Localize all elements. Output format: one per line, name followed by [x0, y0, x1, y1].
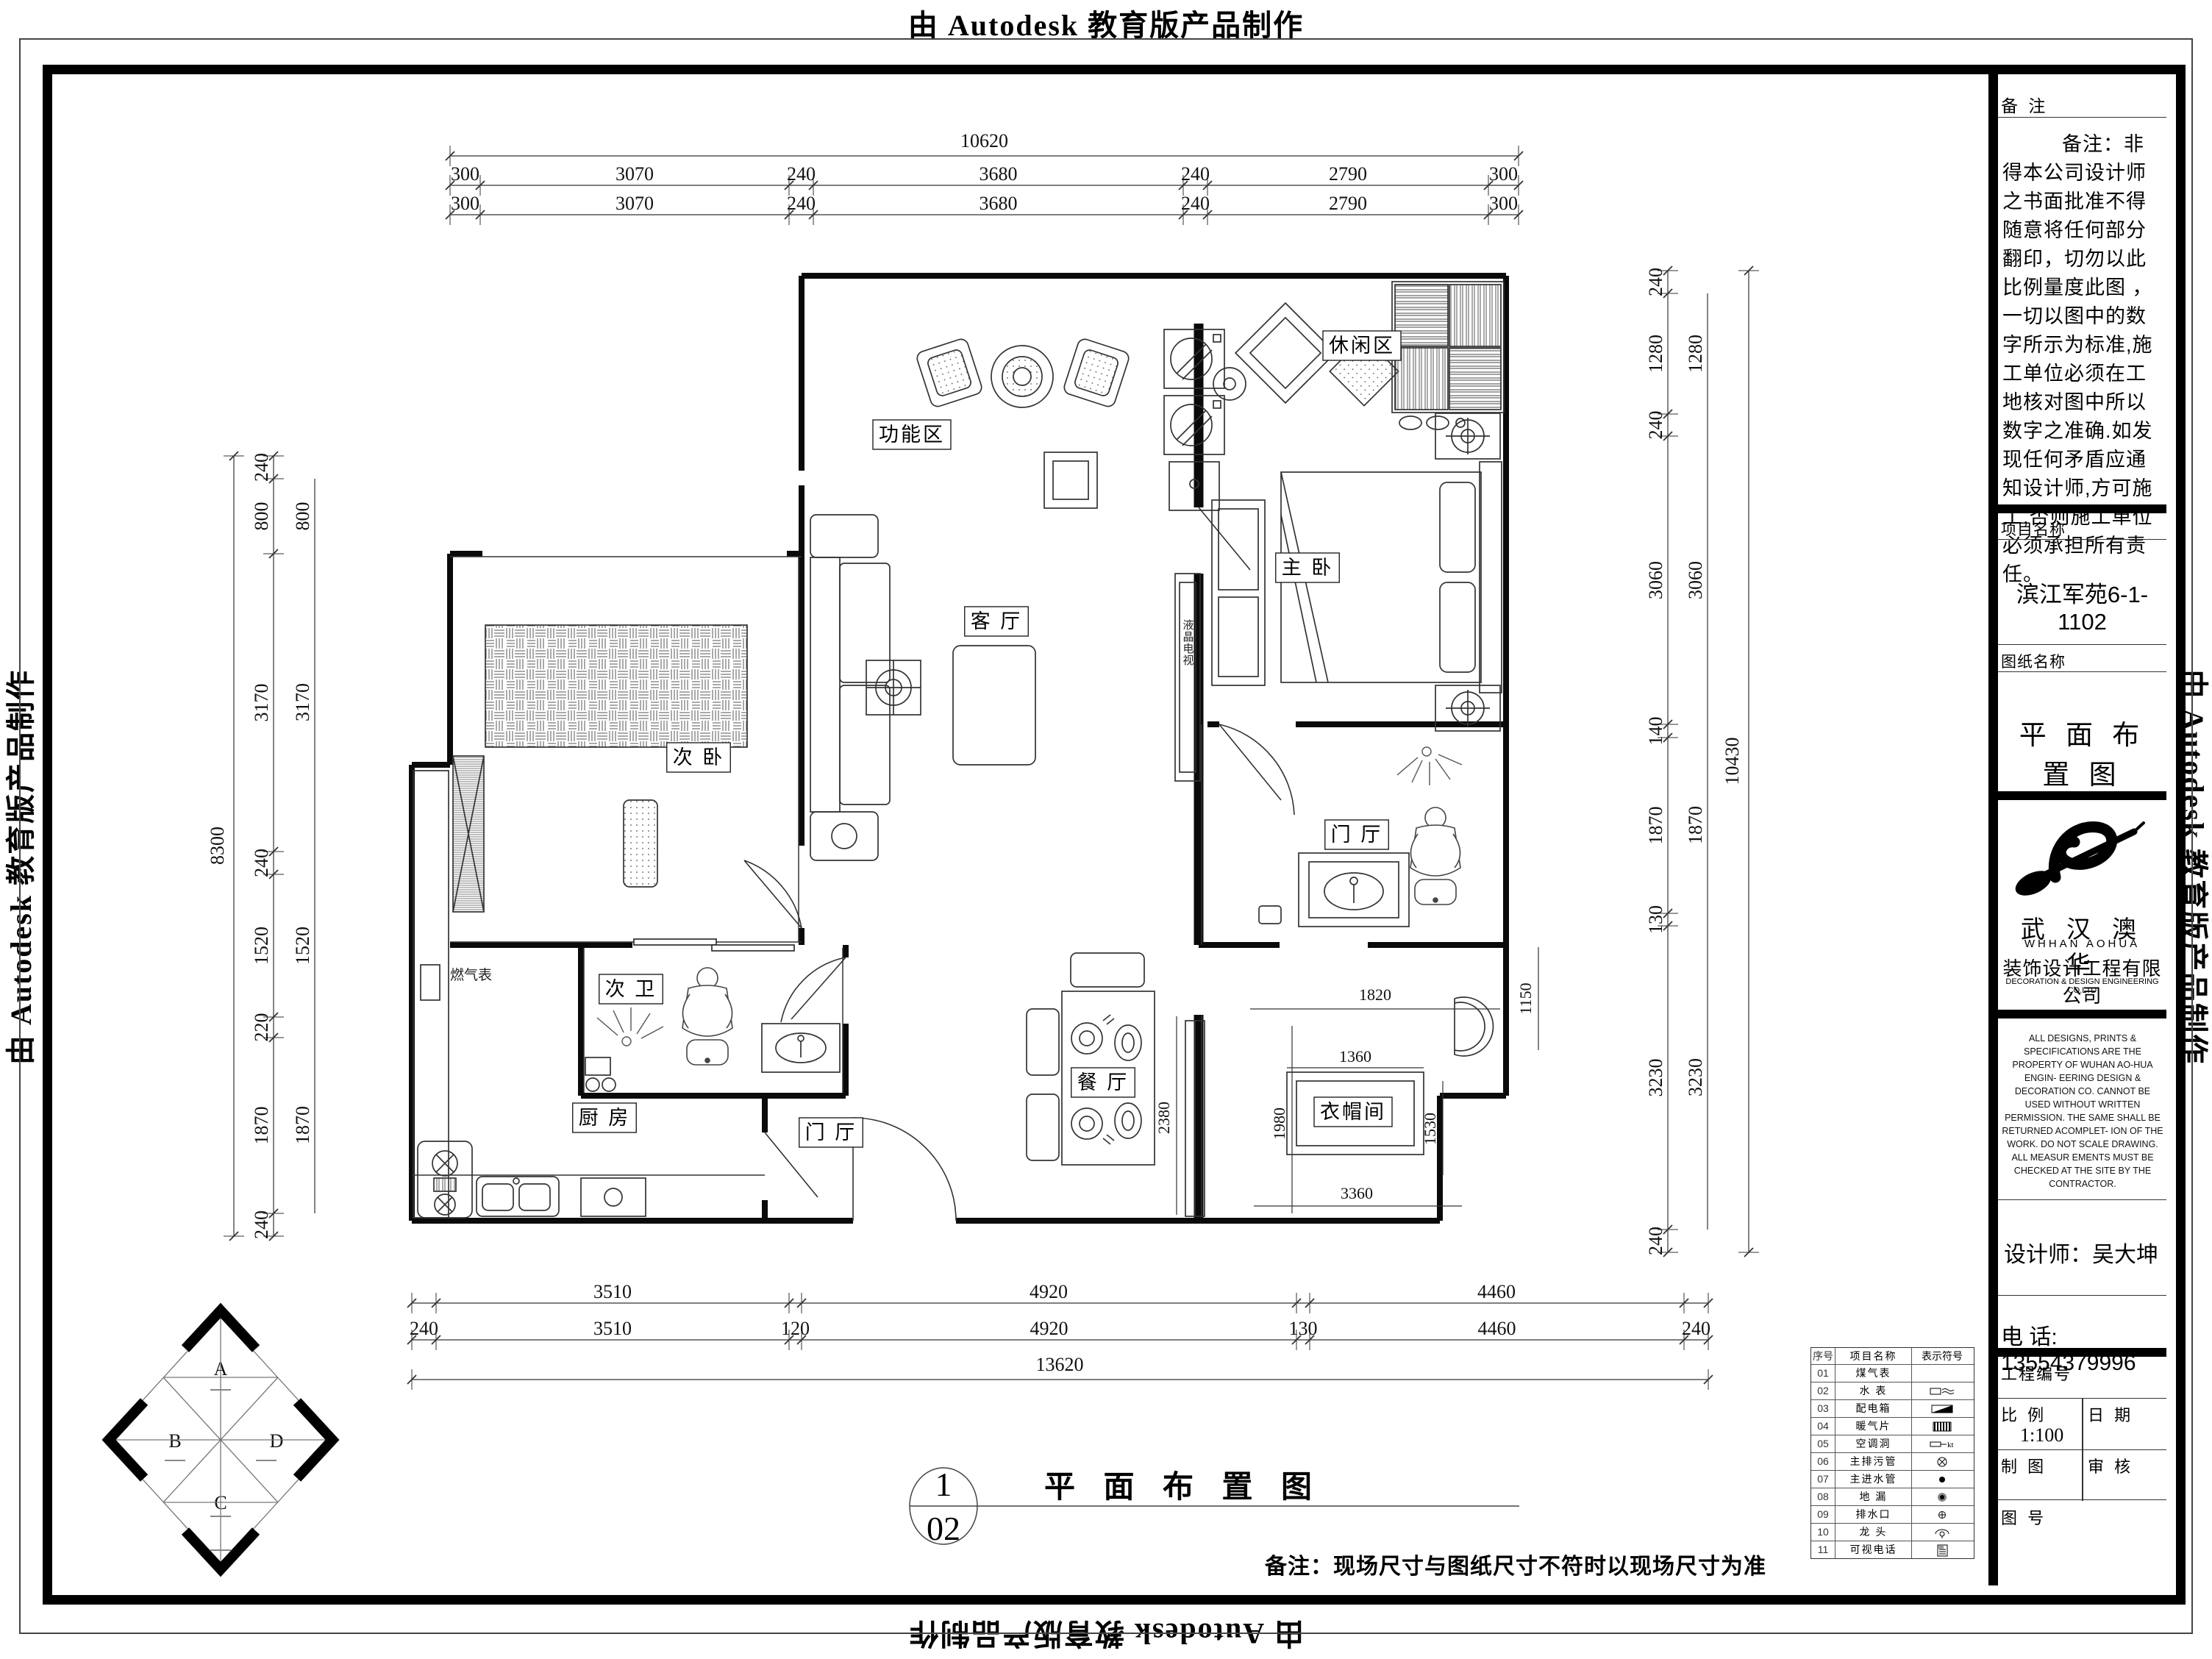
dining-chair-left1 — [1027, 1009, 1059, 1075]
svg-text:240: 240 — [787, 163, 816, 185]
svg-text:300: 300 — [451, 163, 479, 185]
svg-text:3510: 3510 — [593, 1281, 632, 1302]
rays-1 — [597, 1007, 663, 1046]
svg-text:13620: 13620 — [1036, 1354, 1084, 1375]
coffee-table — [953, 646, 1035, 765]
svg-text:1280: 1280 — [1685, 335, 1706, 373]
armchair-right — [1063, 338, 1131, 408]
svg-text:1280: 1280 — [1645, 335, 1666, 373]
dining-chair-top — [1071, 953, 1144, 987]
room-label: 门 厅 — [1331, 824, 1383, 846]
svg-text:300: 300 — [1489, 193, 1518, 214]
svg-text:1520: 1520 — [251, 927, 272, 965]
walls — [412, 276, 1506, 1221]
svg-text:240: 240 — [251, 1210, 272, 1239]
detail-number-top: 1 — [935, 1466, 952, 1503]
room-label: 主 卧 — [1282, 557, 1334, 579]
interior-dimension: 1980 — [1270, 1107, 1288, 1140]
svg-text:1520: 1520 — [292, 927, 313, 965]
svg-text:10430: 10430 — [1722, 738, 1743, 785]
small-round-table — [1213, 368, 1246, 400]
gas-meter — [421, 965, 440, 1000]
room-label: 休闲区 — [1329, 335, 1395, 357]
svg-text:240: 240 — [1181, 163, 1210, 185]
svg-text:3170: 3170 — [292, 683, 313, 721]
svg-text:240: 240 — [787, 193, 816, 214]
svg-text:240: 240 — [1645, 268, 1666, 296]
room-label: 客 厅 — [971, 610, 1023, 632]
compass — [107, 1310, 335, 1569]
ac-unit — [866, 660, 921, 715]
svg-text:240: 240 — [1645, 411, 1666, 440]
furniture — [412, 282, 1504, 1218]
bedroom-wardrobe — [1212, 500, 1265, 685]
floor-plan-canvas: 1062030030702403680240279030030030702403… — [0, 0, 2212, 1659]
svg-text:300: 300 — [1489, 163, 1518, 185]
vanity-basin — [1299, 853, 1409, 927]
svg-text:800: 800 — [292, 502, 313, 531]
svg-text:1870: 1870 — [292, 1106, 313, 1144]
compass-letter-d: D — [270, 1430, 284, 1452]
svg-text:1870: 1870 — [1685, 806, 1706, 844]
room-label: 功能区 — [879, 424, 945, 446]
svg-text:10620: 10620 — [960, 130, 1008, 151]
kitchen-appliance — [581, 1178, 646, 1216]
svg-text:3070: 3070 — [616, 193, 654, 214]
svg-text:2790: 2790 — [1329, 163, 1367, 185]
svg-text:140: 140 — [1645, 717, 1666, 746]
svg-text:300: 300 — [451, 193, 479, 214]
gas-meter-annotation: 燃气表 — [450, 967, 492, 983]
svg-text:3070: 3070 — [616, 163, 654, 185]
washlet-small — [585, 1057, 616, 1091]
gas-stove — [418, 1141, 472, 1218]
svg-text:2790: 2790 — [1329, 193, 1367, 214]
drawing-title-mark: 1 02 平 面 布 置 图 — [910, 1466, 1519, 1547]
compass-letter-b: B — [168, 1430, 181, 1452]
toilet-person-2 — [1410, 807, 1460, 905]
bath-stool — [1259, 906, 1281, 924]
svg-text:240: 240 — [251, 453, 272, 482]
svg-text:4460: 4460 — [1477, 1281, 1516, 1302]
tv-annotation: 液晶电视 — [1182, 619, 1194, 667]
room-label: 次 卧 — [673, 746, 725, 768]
dining-chair-left2 — [1027, 1094, 1059, 1160]
room-label: 次 卫 — [605, 978, 657, 1000]
svg-text:240: 240 — [1181, 193, 1210, 214]
room-label: 餐 厅 — [1077, 1071, 1130, 1093]
svg-text:240: 240 — [1645, 1227, 1666, 1255]
svg-text:3230: 3230 — [1645, 1059, 1666, 1097]
interior-dimension: 3360 — [1341, 1184, 1373, 1202]
kitchen-sink — [477, 1177, 559, 1216]
svg-text:4460: 4460 — [1478, 1318, 1516, 1339]
interior-dimension: 1150 — [1516, 982, 1535, 1014]
sliding-door — [634, 939, 794, 951]
leisure-seat — [1235, 303, 1335, 403]
svg-text:240: 240 — [1682, 1318, 1710, 1339]
rays-2 — [1397, 747, 1462, 785]
drawing-sheet: 由 Autodesk 教育版产品制作 由 Autodesk 教育版产品制作 由 … — [0, 0, 2212, 1659]
footer-title: 平 面 布 置 图 — [1044, 1470, 1322, 1505]
bookshelf — [1392, 282, 1504, 429]
svg-text:1870: 1870 — [1645, 807, 1666, 845]
bedside-rug — [624, 800, 657, 887]
svg-text:1870: 1870 — [251, 1107, 272, 1145]
svg-text:130: 130 — [1289, 1318, 1318, 1339]
interior-dimension: 1530 — [1421, 1113, 1439, 1145]
svg-text:3230: 3230 — [1685, 1058, 1706, 1096]
round-rug — [991, 346, 1053, 407]
svg-text:4920: 4920 — [1030, 1318, 1068, 1339]
tatami-bed — [485, 625, 747, 747]
svg-text:8300: 8300 — [207, 827, 228, 865]
svg-text:3510: 3510 — [593, 1318, 632, 1339]
room-label: 厨 房 — [579, 1107, 631, 1129]
svg-text:120: 120 — [781, 1318, 810, 1339]
svg-text:220: 220 — [251, 1013, 272, 1042]
svg-text:240: 240 — [410, 1318, 438, 1339]
secondary-wardrobe — [453, 756, 484, 912]
armchair-left — [916, 338, 984, 408]
interior-dimension: 2380 — [1155, 1102, 1173, 1134]
interior-dimension: 1820 — [1359, 985, 1391, 1004]
bathroom2-basin — [762, 1024, 840, 1072]
svg-text:3060: 3060 — [1685, 561, 1706, 599]
side-table-square — [1044, 452, 1097, 508]
svg-text:4920: 4920 — [1030, 1281, 1068, 1302]
toilet-person-1 — [682, 968, 732, 1065]
svg-text:240: 240 — [251, 849, 272, 877]
svg-text:3680: 3680 — [980, 163, 1018, 185]
svg-text:3680: 3680 — [980, 193, 1018, 214]
svg-text:3060: 3060 — [1645, 561, 1666, 599]
dressing-chair — [1455, 997, 1493, 1056]
detail-number-bottom: 02 — [927, 1510, 960, 1547]
nightstand-top — [1435, 413, 1500, 459]
svg-text:130: 130 — [1645, 905, 1666, 934]
svg-text:800: 800 — [251, 502, 272, 531]
svg-text:3170: 3170 — [251, 684, 272, 722]
interior-dimension: 1360 — [1339, 1047, 1371, 1066]
room-label: 门 厅 — [805, 1121, 857, 1144]
room-label: 衣帽间 — [1320, 1101, 1386, 1123]
